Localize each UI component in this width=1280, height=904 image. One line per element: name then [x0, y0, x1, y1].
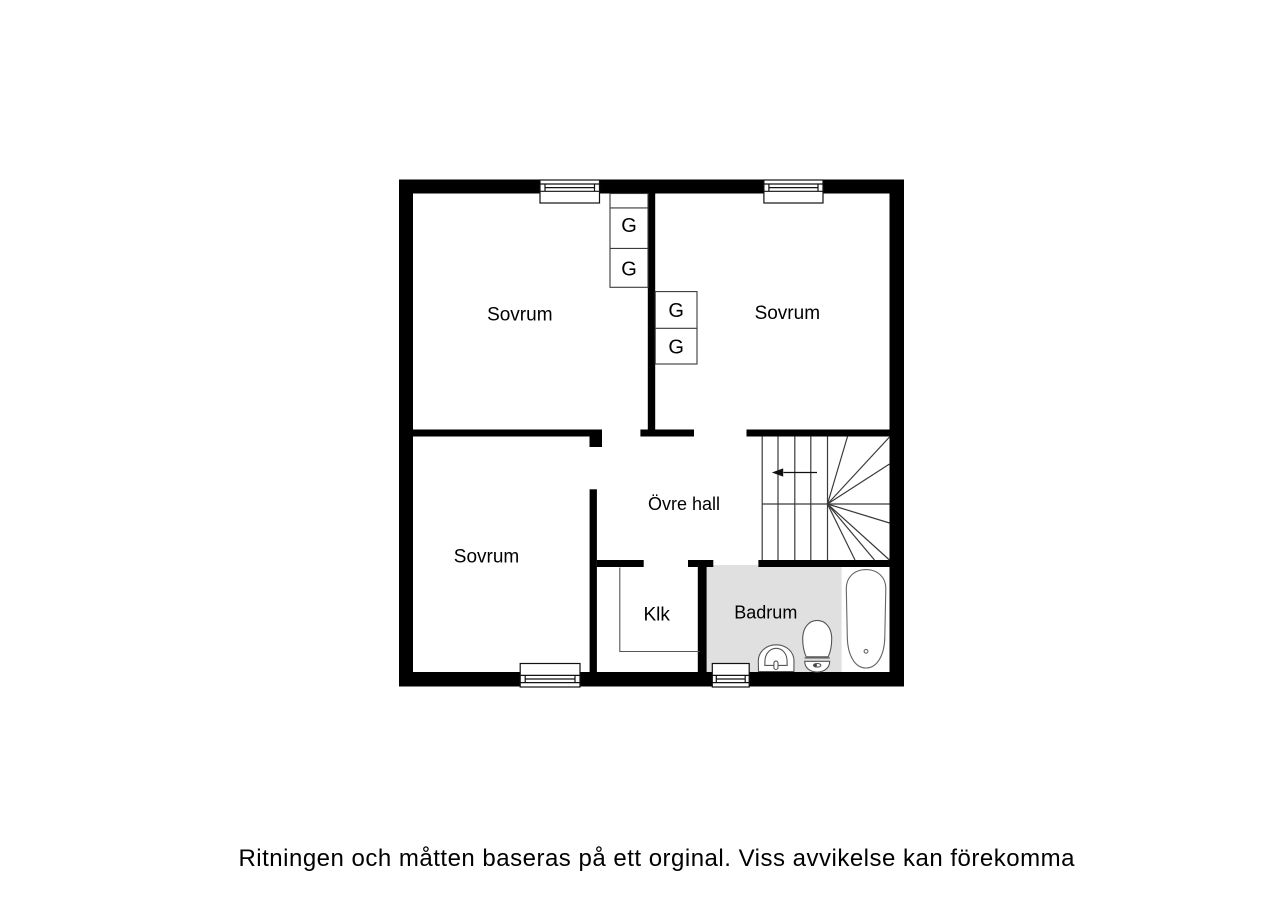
- svg-text:G: G: [621, 215, 637, 237]
- svg-text:Badrum: Badrum: [734, 603, 797, 623]
- svg-text:Sovrum: Sovrum: [454, 547, 519, 568]
- svg-text:G: G: [668, 300, 684, 322]
- svg-text:Sovrum: Sovrum: [487, 304, 552, 325]
- svg-text:G: G: [621, 258, 637, 280]
- svg-text:Sovrum: Sovrum: [755, 303, 820, 324]
- svg-text:Klk: Klk: [643, 604, 670, 625]
- svg-text:Övre hall: Övre hall: [648, 494, 720, 514]
- svg-text:Ritningen och måtten baseras p: Ritningen och måtten baseras på ett orgi…: [238, 845, 1075, 872]
- svg-text:G: G: [668, 337, 684, 359]
